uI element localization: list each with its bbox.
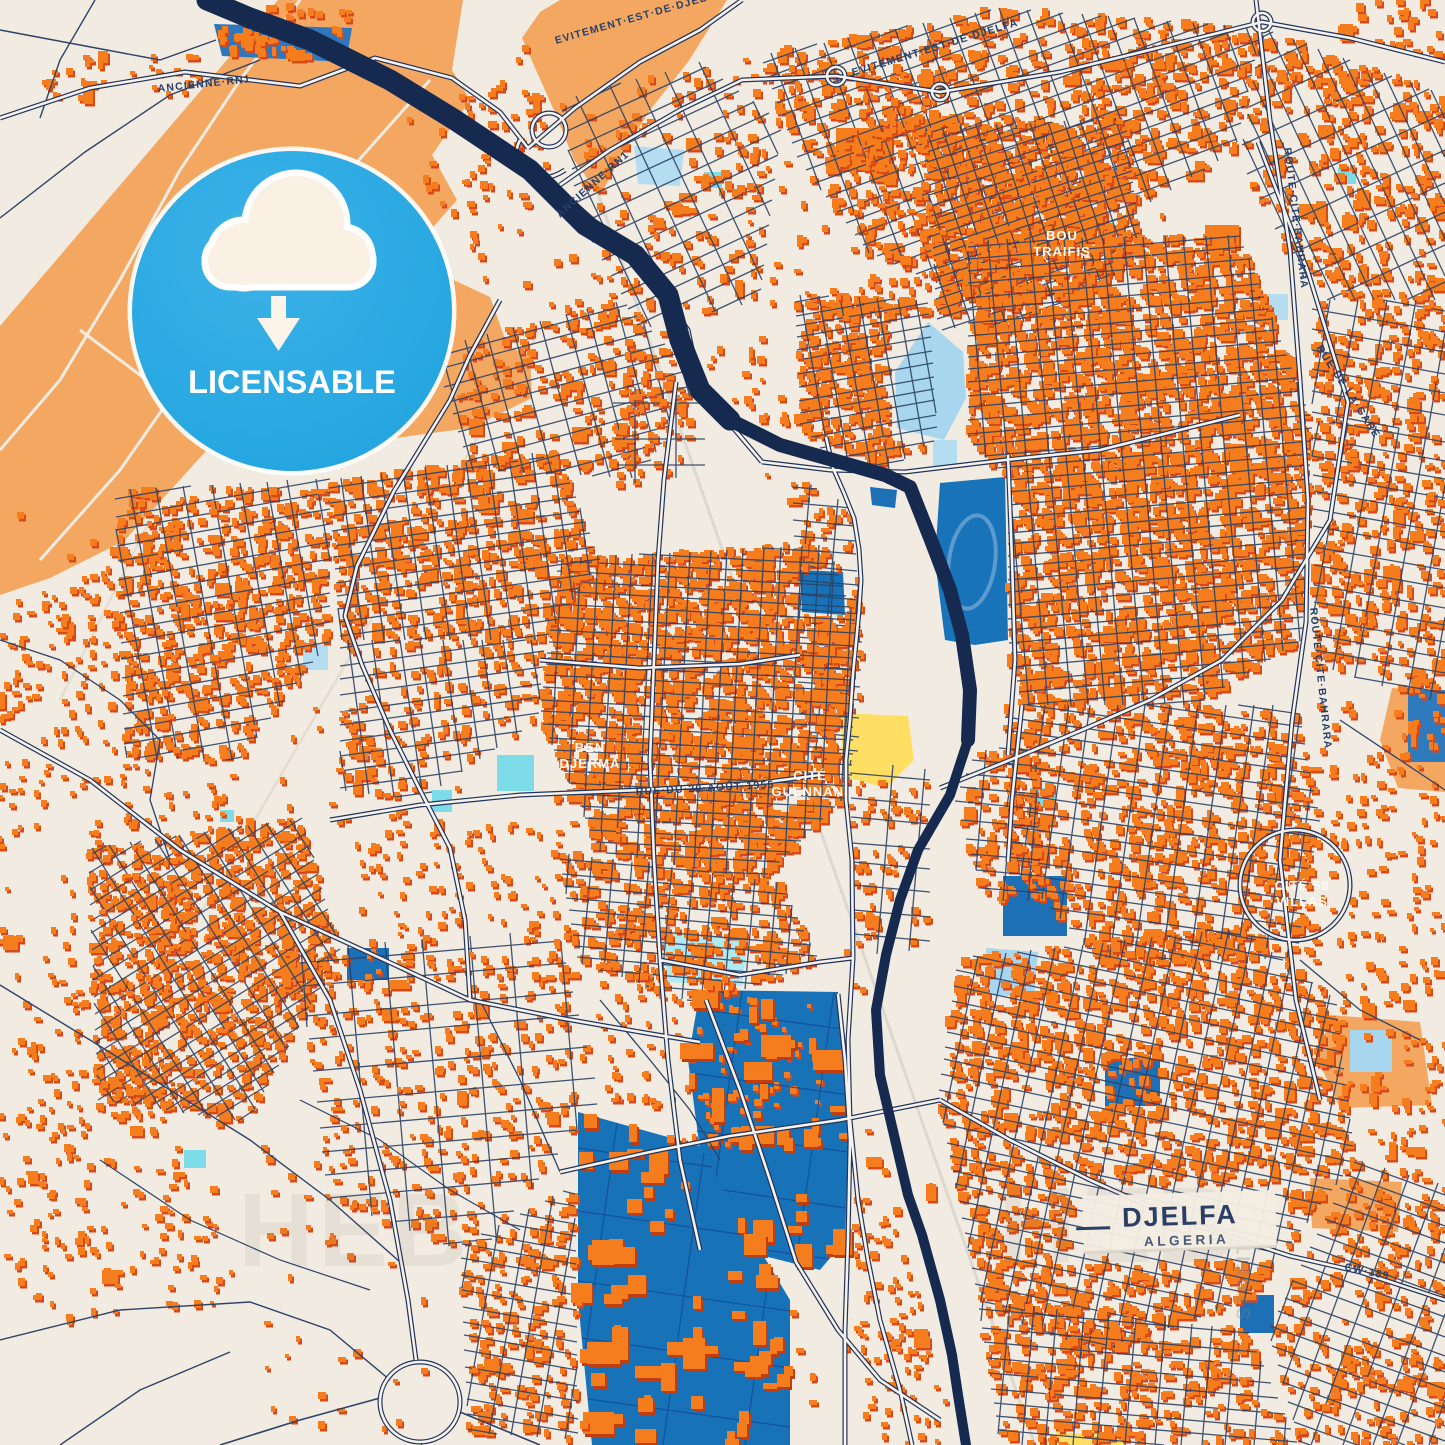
- svg-text:BEN: BEN: [575, 740, 605, 755]
- svg-text:BOU: BOU: [1046, 228, 1078, 243]
- svg-text:LICENSABLE: LICENSABLE: [188, 364, 396, 400]
- svg-text:CITÉ 58: CITÉ 58: [1275, 878, 1330, 893]
- svg-text:GUENNANI: GUENNANI: [771, 784, 848, 799]
- svg-text:ALGERIA: ALGERIA: [1144, 1231, 1230, 1249]
- svg-text:DJELFA: DJELFA: [1122, 1199, 1238, 1233]
- svg-text:DJERMA: DJERMA: [560, 756, 621, 771]
- svg-text:TRAIFIS: TRAIFIS: [1033, 244, 1091, 259]
- svg-text:CITÉ: CITÉ: [793, 768, 827, 783]
- svg-text:HEB: HEB: [238, 1172, 472, 1289]
- svg-text:VILLAS: VILLAS: [1276, 894, 1328, 909]
